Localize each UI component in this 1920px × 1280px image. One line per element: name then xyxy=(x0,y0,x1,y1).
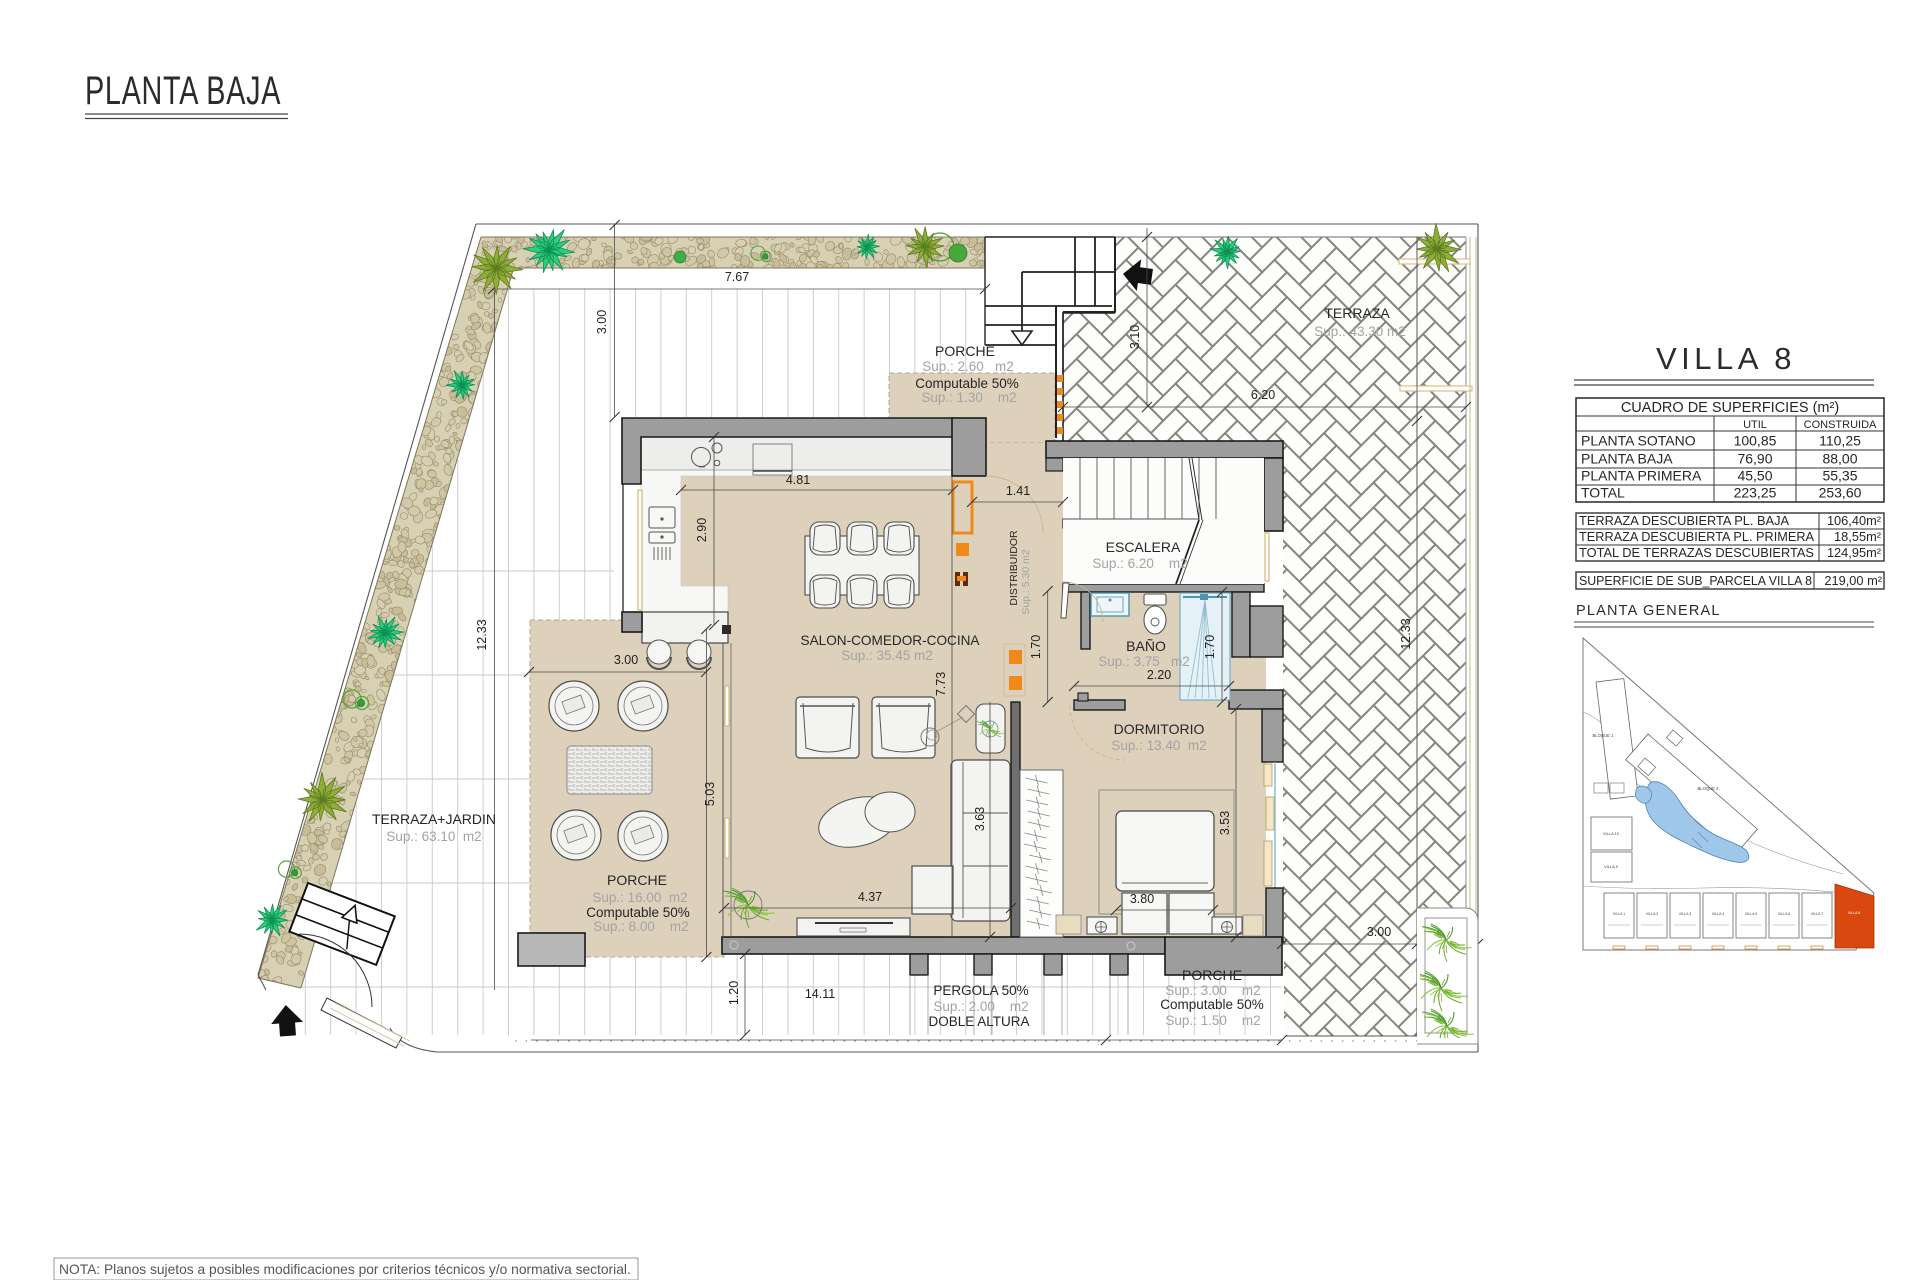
svg-text:SALON-COMEDOR-COCINA: SALON-COMEDOR-COCINA xyxy=(801,633,981,648)
svg-text:PORCHE: PORCHE xyxy=(935,343,995,359)
svg-text:TERRAZA DESCUBIERTA PL. BAJA: TERRAZA DESCUBIERTA PL. BAJA xyxy=(1579,513,1789,528)
svg-text:PERGOLA 50%: PERGOLA 50% xyxy=(933,983,1028,998)
svg-text:88,00: 88,00 xyxy=(1822,451,1857,467)
svg-text:Sup.: 3.75 m2: Sup.: 3.75 m2 xyxy=(1098,654,1190,669)
svg-text:Sup.: 43.30 m2: Sup.: 43.30 m2 xyxy=(1314,324,1406,339)
svg-text:2.90: 2.90 xyxy=(695,518,709,542)
svg-text:76,90: 76,90 xyxy=(1737,451,1772,467)
svg-text:3.10: 3.10 xyxy=(1128,325,1142,349)
svg-text:55,35: 55,35 xyxy=(1822,468,1857,484)
svg-text:3.00: 3.00 xyxy=(614,653,638,667)
svg-text:3.80: 3.80 xyxy=(1130,892,1154,906)
svg-text:VILLA 2: VILLA 2 xyxy=(1646,912,1659,916)
svg-text:4.37: 4.37 xyxy=(858,890,882,904)
svg-text:TOTAL: TOTAL xyxy=(1581,485,1625,501)
svg-text:Sup.: 2.00 m2: Sup.: 2.00 m2 xyxy=(933,999,1028,1014)
svg-text:VILLA 1: VILLA 1 xyxy=(1613,912,1626,916)
svg-text:6.20: 6.20 xyxy=(1251,388,1275,402)
svg-text:Sup.: 16.00 m2: Sup.: 16.00 m2 xyxy=(592,890,687,905)
svg-text:PLANTA BAJA: PLANTA BAJA xyxy=(1581,451,1673,467)
svg-text:Sup.: 63.10 m2: Sup.: 63.10 m2 xyxy=(386,829,481,844)
svg-text:7.67: 7.67 xyxy=(725,270,749,284)
svg-text:CONSTRUIDA: CONSTRUIDA xyxy=(1804,419,1877,431)
svg-text:VILLA 6: VILLA 6 xyxy=(1778,912,1791,916)
svg-text:TOTAL DE TERRAZAS DESCUBIERTAS: TOTAL DE TERRAZAS DESCUBIERTAS xyxy=(1579,545,1814,560)
svg-text:110,25: 110,25 xyxy=(1819,433,1861,449)
svg-text:VILLA 10: VILLA 10 xyxy=(1603,831,1620,836)
svg-text:124,95m²: 124,95m² xyxy=(1827,545,1882,560)
svg-text:DOBLE ALTURA: DOBLE ALTURA xyxy=(928,1014,1029,1029)
svg-text:100,85: 100,85 xyxy=(1734,433,1777,449)
svg-text:3.00: 3.00 xyxy=(595,310,609,334)
svg-text:VILLA 8: VILLA 8 xyxy=(1656,341,1796,376)
svg-text:Sup.: 3.00 m2: Sup.: 3.00 m2 xyxy=(1165,983,1260,998)
svg-text:NOTA: Planos sujetos a posible: NOTA: Planos sujetos a posibles modifica… xyxy=(59,1262,631,1277)
svg-text:PLANTA SOTANO: PLANTA SOTANO xyxy=(1581,433,1696,449)
svg-text:12.33: 12.33 xyxy=(475,619,489,650)
svg-text:PORCHE: PORCHE xyxy=(1182,967,1242,983)
svg-text:3.53: 3.53 xyxy=(1218,811,1232,835)
svg-text:TERRAZA+JARDIN: TERRAZA+JARDIN xyxy=(372,811,496,827)
svg-text:TERRAZA DESCUBIERTA PL. PRIMER: TERRAZA DESCUBIERTA PL. PRIMERA xyxy=(1579,529,1814,544)
svg-text:106,40m²: 106,40m² xyxy=(1827,513,1882,528)
svg-text:Computable 50%: Computable 50% xyxy=(915,376,1019,391)
svg-text:18,55m²: 18,55m² xyxy=(1834,529,1882,544)
svg-text:1.41: 1.41 xyxy=(1006,484,1030,498)
svg-text:BLOQUE 1: BLOQUE 1 xyxy=(1593,733,1615,738)
svg-text:14.11: 14.11 xyxy=(805,987,835,1001)
svg-text:1.20: 1.20 xyxy=(727,981,741,1005)
svg-text:223,25: 223,25 xyxy=(1734,485,1777,501)
svg-text:BLOQUE 2: BLOQUE 2 xyxy=(1698,786,1720,791)
svg-text:VILLA 4: VILLA 4 xyxy=(1712,912,1725,916)
svg-text:TERRAZA: TERRAZA xyxy=(1324,305,1390,321)
svg-text:VILLA 8: VILLA 8 xyxy=(1848,911,1861,915)
svg-text:SUPERFICIE DE SUB_PARCELA VILL: SUPERFICIE DE SUB_PARCELA VILLA 8 xyxy=(1579,573,1812,588)
svg-text:Sup.: 5.30 m2: Sup.: 5.30 m2 xyxy=(1020,549,1032,615)
svg-text:VILLA 5: VILLA 5 xyxy=(1745,912,1758,916)
svg-text:3.00: 3.00 xyxy=(1367,925,1391,939)
svg-text:45,50: 45,50 xyxy=(1737,468,1772,484)
svg-text:2.20: 2.20 xyxy=(1147,668,1171,682)
svg-text:Sup.: 1.50 m2: Sup.: 1.50 m2 xyxy=(1165,1013,1260,1028)
svg-text:Computable 50%: Computable 50% xyxy=(1160,997,1264,1012)
svg-text:5.03: 5.03 xyxy=(703,782,717,806)
svg-text:UTIL: UTIL xyxy=(1743,419,1767,431)
svg-text:Sup.: 2.60 m2: Sup.: 2.60 m2 xyxy=(922,359,1014,374)
svg-text:253,60: 253,60 xyxy=(1819,485,1862,501)
svg-text:PLANTA BAJA: PLANTA BAJA xyxy=(85,68,281,113)
svg-text:Sup.: 35.45 m2: Sup.: 35.45 m2 xyxy=(841,648,933,663)
svg-text:PLANTA GENERAL: PLANTA GENERAL xyxy=(1576,603,1721,619)
svg-text:Sup.: 6.20 m2: Sup.: 6.20 m2 xyxy=(1092,556,1187,571)
svg-text:Sup.: 1.30 m2: Sup.: 1.30 m2 xyxy=(921,390,1016,405)
svg-text:VILLA 7: VILLA 7 xyxy=(1811,912,1824,916)
svg-text:DISTRIBUIDOR: DISTRIBUIDOR xyxy=(1008,530,1020,606)
svg-text:4.81: 4.81 xyxy=(786,473,810,487)
svg-text:Sup.: 13.40 m2: Sup.: 13.40 m2 xyxy=(1111,738,1206,753)
svg-text:PORCHE: PORCHE xyxy=(607,872,667,888)
svg-text:ESCALERA: ESCALERA xyxy=(1106,539,1181,555)
svg-text:219,00 m²: 219,00 m² xyxy=(1824,573,1882,588)
svg-text:3.63: 3.63 xyxy=(973,807,987,831)
svg-text:BAÑO: BAÑO xyxy=(1126,638,1166,654)
svg-text:VILLA 3: VILLA 3 xyxy=(1679,912,1692,916)
svg-text:Sup.: 8.00 m2: Sup.: 8.00 m2 xyxy=(593,919,688,934)
svg-text:VILLA 9: VILLA 9 xyxy=(1604,864,1619,869)
svg-text:Computable 50%: Computable 50% xyxy=(586,905,690,920)
svg-text:CUADRO DE SUPERFICIES (m²): CUADRO DE SUPERFICIES (m²) xyxy=(1621,400,1839,416)
svg-text:PLANTA PRIMERA: PLANTA PRIMERA xyxy=(1581,468,1702,484)
svg-text:1.70: 1.70 xyxy=(1203,635,1217,659)
svg-text:1.70: 1.70 xyxy=(1029,635,1043,659)
svg-text:12.33: 12.33 xyxy=(1399,618,1413,649)
svg-text:7.73: 7.73 xyxy=(934,672,948,696)
svg-text:DORMITORIO: DORMITORIO xyxy=(1114,721,1205,737)
